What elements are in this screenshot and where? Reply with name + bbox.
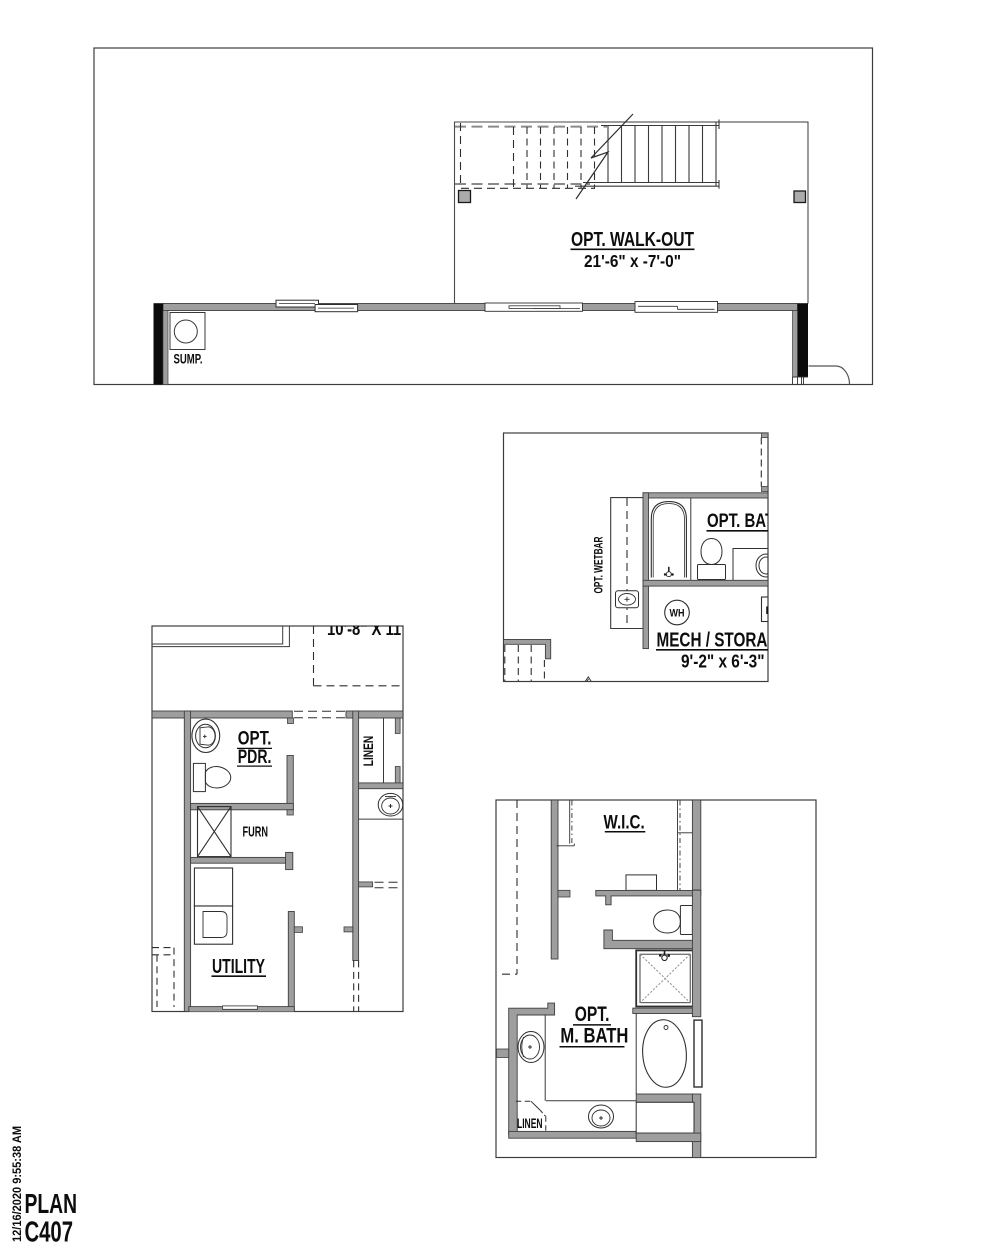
- svg-text:SUMP.: SUMP.: [174, 352, 203, 367]
- svg-text:OPT. WALK-OUT: OPT. WALK-OUT: [571, 229, 694, 251]
- svg-text:PDR.: PDR.: [238, 747, 272, 768]
- svg-text:C407: C407: [25, 1217, 74, 1249]
- svg-text:OPT. WETBAR: OPT. WETBAR: [594, 536, 606, 593]
- svg-text:LINEN: LINEN: [361, 736, 376, 767]
- svg-text:M. BATH: M. BATH: [560, 1024, 628, 1048]
- svg-text:WH: WH: [670, 607, 685, 619]
- svg-text:OPT.: OPT.: [575, 1002, 610, 1026]
- svg-text:9'-2" x 6'-3": 9'-2" x 6'-3": [681, 652, 765, 672]
- svg-text:PLAN: PLAN: [25, 1188, 78, 1219]
- svg-text:12/16/2020 9:55:38 AM: 12/16/2020 9:55:38 AM: [10, 1126, 24, 1242]
- svg-text:LINEN: LINEN: [517, 1116, 543, 1131]
- svg-text:FURN: FURN: [243, 825, 269, 841]
- svg-text:W.I.C.: W.I.C.: [604, 812, 645, 834]
- svg-text:UTILITY: UTILITY: [212, 956, 265, 978]
- svg-text:21'-6" x -7'-0": 21'-6" x -7'-0": [584, 251, 681, 271]
